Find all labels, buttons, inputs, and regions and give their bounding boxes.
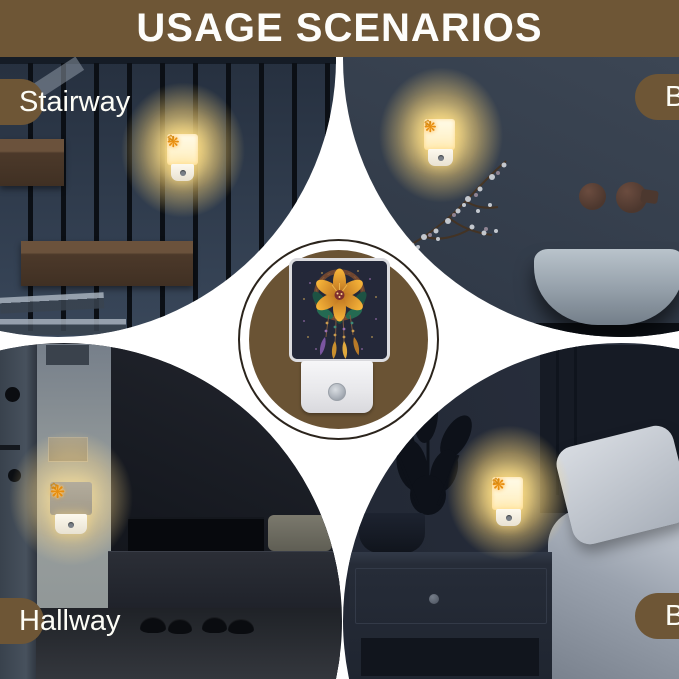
nightstand-shelf (361, 638, 539, 676)
label-chip-hallway: Hallway (0, 598, 44, 644)
dreamcatcher-artwork (292, 261, 387, 359)
light-sensor (68, 522, 74, 528)
storage-basket (268, 515, 332, 551)
night-light-plate: ❋ ✿ (167, 134, 198, 165)
night-light-body (55, 514, 86, 534)
label-chip-bedroom: Bedroom (635, 593, 679, 639)
scene-label: Hallway (19, 605, 121, 638)
night-light-body (496, 509, 520, 526)
sprig-pattern-icon: ✿ (492, 477, 500, 486)
wood-beam (21, 241, 193, 286)
faucet-knob (579, 183, 606, 210)
plant-pot (359, 513, 425, 553)
night-light: ❋ ✿ (492, 477, 525, 526)
label-chip-bathroom: Bathroom (635, 74, 679, 120)
night-light-plate: ❋ ✿ (424, 119, 455, 150)
shoe (140, 617, 166, 633)
sprig-pattern-icon: ✿ (424, 119, 432, 128)
wall-vent (46, 345, 89, 365)
night-light: ❋ ✿ (50, 482, 92, 534)
shoe-cabinet (108, 551, 340, 610)
sprig-pattern-icon: ✿ (167, 134, 175, 143)
product-infographic: USAGE SCENARIOS ❋ ✿ (0, 0, 679, 679)
door-handle (5, 387, 20, 402)
night-light: ❋ ✿ (167, 134, 198, 181)
faucet-spout (640, 189, 659, 204)
night-light-body (171, 164, 194, 181)
night-light-plate: ❋ ✿ (492, 477, 523, 510)
night-light: ❋ ✿ (424, 119, 457, 166)
light-sensor (506, 515, 512, 521)
shoe (202, 617, 227, 633)
scene-label: Bathroom (665, 81, 679, 114)
product-faceplate (289, 258, 390, 362)
wood-beam (0, 139, 64, 186)
scene-label: Bedroom (665, 600, 679, 633)
scene-label: Stairway (19, 86, 130, 119)
shoe (168, 619, 192, 634)
shoe (228, 619, 254, 634)
product-light-sensor (328, 383, 346, 401)
stair-step (0, 319, 126, 335)
header-band: USAGE SCENARIOS (0, 0, 679, 57)
light-sensor (438, 155, 444, 161)
light-sensor (180, 170, 186, 176)
page-title: USAGE SCENARIOS (0, 0, 679, 56)
product-body (301, 361, 373, 413)
label-chip-stairway: Stairway (0, 79, 44, 125)
sprig-pattern-icon: ✿ (50, 482, 58, 491)
night-light-body (428, 149, 452, 166)
drawer-knob (429, 594, 439, 604)
night-light-plate: ❋ ✿ (50, 482, 92, 515)
